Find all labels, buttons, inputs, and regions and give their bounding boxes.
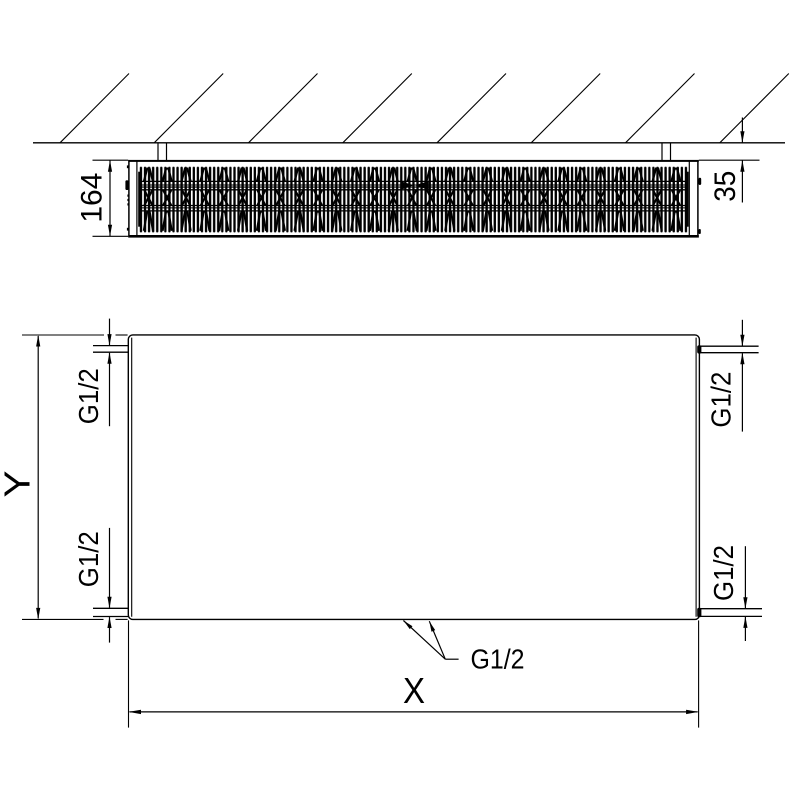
svg-text:X: X [403,670,425,711]
svg-text:Y: Y [0,471,37,498]
svg-text:164: 164 [75,173,108,223]
svg-text:G1/2: G1/2 [73,531,104,587]
svg-text:G1/2: G1/2 [708,545,739,601]
svg-text:G1/2: G1/2 [73,368,104,424]
svg-text:G1/2: G1/2 [705,372,736,428]
svg-text:G1/2: G1/2 [471,644,525,675]
svg-text:35: 35 [709,171,742,202]
